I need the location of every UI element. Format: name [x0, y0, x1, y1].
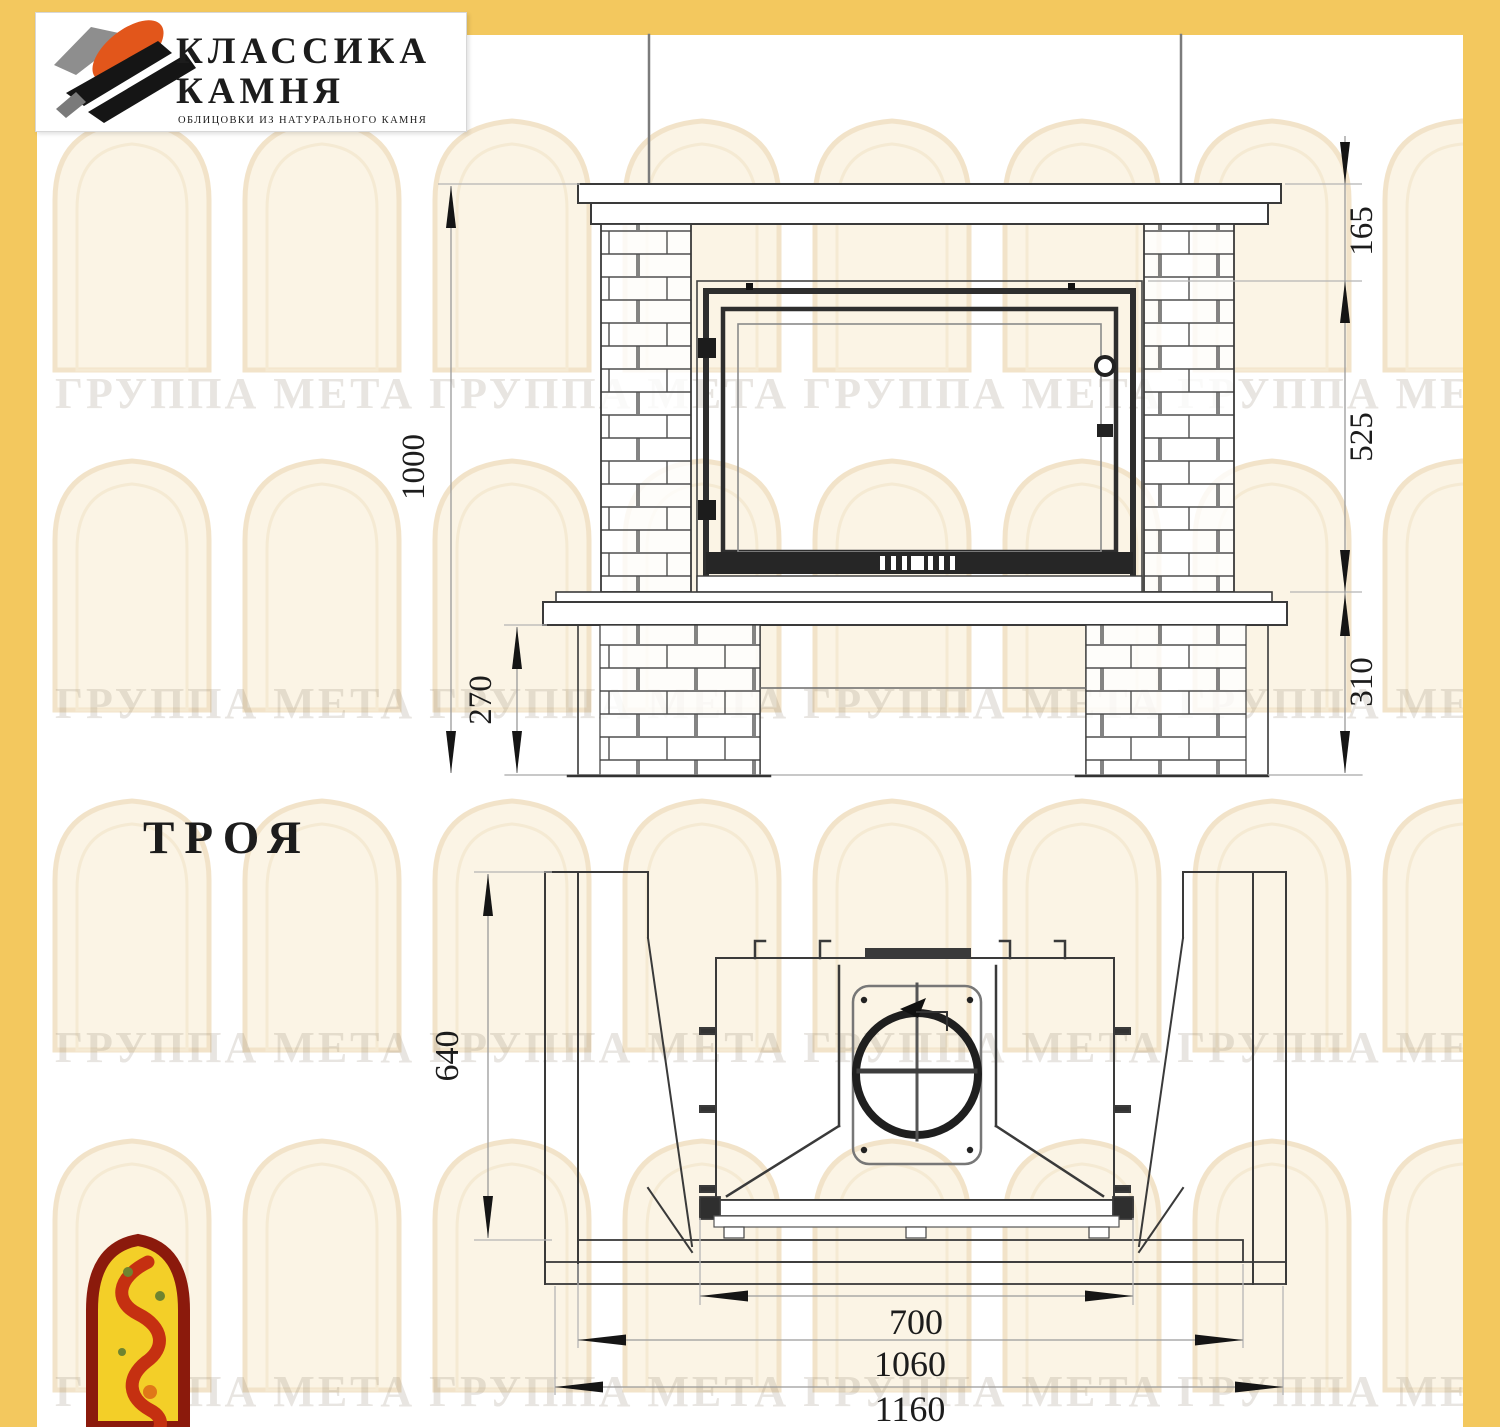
firebox-outer-frame [697, 281, 1142, 592]
plate-bolt [861, 1147, 867, 1153]
dim-label-640: 640 [429, 1031, 466, 1082]
fireplace-technical-drawing: 1000 270 165 525 [0, 0, 1500, 1427]
hearth-shelf-main [543, 602, 1287, 625]
emblem-dot [143, 1385, 157, 1399]
dim-label-165: 165 [1344, 206, 1380, 256]
dimension-depth: 640 [429, 872, 552, 1240]
wall-splay-left [648, 938, 692, 1246]
dim-label-1060: 1060 [874, 1344, 946, 1384]
side-clip [700, 1106, 716, 1112]
plate-bolt [861, 997, 867, 1003]
side-clip [700, 1028, 716, 1034]
front-foot [724, 1227, 744, 1238]
door-outer-frame [706, 291, 1133, 583]
mantel-shelf-lower [591, 203, 1268, 224]
hearth-shelf-top [556, 592, 1272, 602]
chamber-splay-left [727, 1126, 839, 1196]
base-plinths [578, 625, 1268, 775]
plan-firebox [700, 941, 1130, 1200]
plate-bolt [967, 1147, 973, 1153]
dimension-plinth-height: 270 [463, 625, 547, 773]
dim-label-310: 310 [1344, 657, 1380, 707]
door-bolt-left [746, 283, 753, 290]
emblem-dot [123, 1267, 133, 1277]
dim-label-270: 270 [463, 675, 499, 725]
firebox-front [697, 281, 1142, 592]
side-clip [1114, 1106, 1130, 1112]
side-clip [1114, 1186, 1130, 1192]
mantel-shelf-top [578, 184, 1281, 203]
base-slab-plan [545, 1262, 1286, 1284]
emblem-dot [118, 1348, 126, 1356]
brick-column-right [1144, 224, 1234, 592]
firebox-clip [1000, 941, 1010, 958]
company-emblem [92, 1240, 184, 1427]
plan-view [545, 872, 1286, 1284]
door-glass [738, 324, 1101, 552]
dim-label-700: 700 [889, 1302, 943, 1342]
door-hinge-bottom [698, 500, 716, 520]
air-vent-slats [880, 556, 955, 570]
dim-label-525: 525 [1344, 412, 1380, 462]
dim-label-1160: 1160 [875, 1389, 946, 1427]
side-clip [1114, 1028, 1130, 1034]
side-clip [700, 1186, 716, 1192]
door-latch-lower [1097, 424, 1113, 437]
front-trim-band [714, 1216, 1119, 1227]
front-foot [1089, 1227, 1109, 1238]
drawing-sheet: ГРУППА МЕТА ГРУППА МЕТА ГРУППА МЕТА ГРУП… [0, 0, 1500, 1427]
plinth-right-brick [1086, 625, 1246, 775]
chamber-splay-right [996, 1126, 1103, 1196]
door-hinge-top [698, 338, 716, 358]
plinth-left-brick [600, 625, 760, 775]
front-foot [906, 1227, 926, 1238]
door-latch-knob [1096, 357, 1114, 375]
wall-splay-right [1139, 938, 1183, 1246]
plate-bolt [967, 997, 973, 1003]
front-elevation-view [505, 35, 1362, 776]
firebox-clip [755, 941, 765, 958]
emblem-dot [155, 1291, 165, 1301]
dim-label-1000: 1000 [396, 434, 432, 500]
hearth-slab-plan [578, 1240, 1243, 1262]
firebox-clip [1055, 941, 1065, 958]
firebox-clip [820, 941, 830, 958]
plan-front-assembly [700, 1197, 1133, 1238]
firebox-sill [697, 576, 1142, 592]
door-inner-frame [723, 309, 1116, 552]
brick-column-left [601, 224, 691, 592]
plan-view-dimensions: 640 700 1060 [429, 872, 1283, 1427]
door-bolt-right [1068, 283, 1075, 290]
flue-stub [866, 949, 970, 958]
front-frame-band [700, 1200, 1133, 1216]
model-title: ТРОЯ [143, 812, 311, 864]
